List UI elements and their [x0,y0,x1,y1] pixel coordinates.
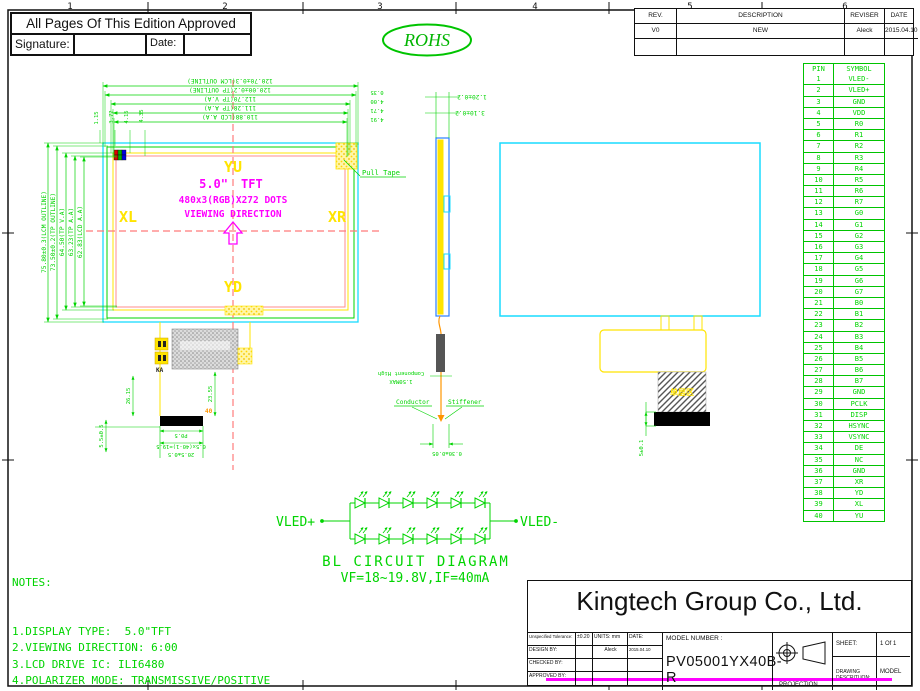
pad-label-ka: KA [156,367,164,374]
front-top-dimension-labels: 120.70±0.3(LCM OUTLINE) 120.00±0.2(TP OU… [187,77,383,122]
sheet-value: 1 Of 1 [877,633,910,657]
model-number-label: MODEL NUMBER : [666,635,772,642]
svg-text:0.30±0.05: 0.30±0.05 [432,450,462,456]
led-symbol [427,527,440,544]
svg-text:3.72: 3.72 [109,110,115,123]
pin40-marker: 40 [205,408,213,415]
pin-row: 3GND [804,96,884,107]
stiffener-label: Stiffener [448,399,482,406]
note-line: 4.POLARIZER MODE: TRANSMISSIVE/POSITIVE [12,673,352,689]
date-label: DATE: [628,633,663,646]
model-number-value: PV05001YX40B-R [666,654,772,686]
bl-subtitle: VF=18~19.8V,IF=40mA [341,571,490,586]
side-stiffener-bar [436,334,445,372]
approved-by-label: APPROVED BY: [528,672,576,685]
pin-row: 25B4 [804,342,884,353]
drawing-description-label: DRAWING DESCRITUON: [833,657,877,690]
svg-text:120.70±0.3(LCM OUTLINE): 120.70±0.3(LCM OUTLINE) [187,77,273,84]
vled-minus-label: VLED- [520,515,559,530]
note-line: 2.VIEWING DIRECTION: 6:00 [12,640,352,656]
svg-text:5±0.1: 5±0.1 [639,440,645,457]
revision-table: REV. DESCRIPTION REVISER DATE V0 NEW Ale… [634,8,914,56]
svg-text:1.15: 1.15 [94,111,100,124]
rohs-stamp: ROHS [383,25,471,56]
pin-row: 20G7 [804,286,884,297]
zone-number: 2 [222,2,227,12]
sheet-label: SHEET: [833,633,877,657]
side-tp-layer [438,140,444,315]
svg-text:1.20±0.2: 1.20±0.2 [457,93,487,100]
fpc-front: KA 40 23.55 26.15 5.5±0.5 P0.5 0.5x(40-1… [95,322,252,458]
pin-row: 15G2 [804,230,884,241]
third-angle-projection-icon [773,633,831,673]
tolerance-value: ±0.20 [576,633,593,646]
led-symbol [403,527,416,544]
notes-block: NOTES: 1.DISPLAY TYPE: 5.0"TFT2.VIEWING … [12,542,352,691]
fpc-tip-arrow [438,415,445,422]
pin-row: 36GND [804,465,884,476]
projection-label: PROJECTION [779,682,818,688]
svg-text:4.71: 4.71 [370,107,383,113]
pin-row: 14G1 [804,219,884,230]
svg-text:63.23(TP A.A): 63.23(TP A.A) [68,208,75,256]
note-line: 1.DISPLAY TYPE: 5.0"TFT [12,624,352,640]
revision-row-empty [635,39,913,55]
units-label: UNITS: mm [593,633,628,646]
tolerance-label: Unspecified Tolerance: [528,633,576,646]
svg-text:4.00: 4.00 [370,98,383,104]
pin-row: 10R5 [804,174,884,185]
design-date: 2015.04.10 [628,646,663,659]
pin-row: 40YU [804,510,884,521]
pin-row: 12R7 [804,196,884,207]
design-by-label: DESIGN BY: [528,646,576,659]
title-block: Kingtech Group Co., Ltd. Unspecified Tol… [527,580,912,686]
description-col-header: DESCRIPTION [677,9,845,24]
back-view: 单层区 5±0.1 [500,143,760,456]
single-layer-label: 单层区 [670,387,694,397]
pin-row: 29GND [804,386,884,397]
pin-row: 17G4 [804,252,884,263]
checked-by-label: CHECKED BY: [528,659,576,672]
led-array [355,491,488,544]
fpc-exit-tab [225,306,263,315]
notes-title: NOTES: [12,575,352,591]
pin-row: 7R2 [804,140,884,151]
led-symbol [451,527,464,544]
pull-tape-label: Pull Tape [362,169,400,177]
pin-row: 21B0 [804,297,884,308]
pin-row: 23B2 [804,319,884,330]
svg-text:64.50(TP V.A): 64.50(TP V.A) [59,208,66,256]
led-symbol [475,491,488,508]
label-yu: YU [224,158,242,176]
tape-pad [238,348,252,364]
conductor-label: Conductor [396,399,430,406]
projection-cell: PROJECTION [773,633,833,690]
zone-number: 3 [377,2,382,12]
pin-row: 8R3 [804,152,884,163]
viewing-direction: VIEWING DIRECTION [184,209,282,220]
signature-field[interactable] [75,35,147,54]
approval-title: All Pages Of This Edition Approved [12,14,250,35]
pin-table: PIN SYMBOL 1VLED-2VLED+3GND4VDD5R06R17R2… [803,63,885,522]
label-xr: XR [328,208,347,226]
pin-row: 32HSYNC [804,420,884,431]
rgb-pixel-swatch [114,150,126,160]
svg-text:4.35: 4.35 [139,109,145,122]
pin-row: 26B5 [804,353,884,364]
signature-label: Signature: [12,35,75,54]
pin-row: 19G6 [804,275,884,286]
pin-row: 6R1 [804,129,884,140]
pull-tape-area [336,143,357,169]
pin-row: 30PCLK [804,398,884,409]
led-symbol [427,491,440,508]
model-label: MODEL [877,657,910,690]
revision-header-row: REV. DESCRIPTION REVISER DATE [635,9,913,24]
svg-text:110.88(LCD A.A): 110.88(LCD A.A) [202,113,258,120]
svg-text:73.50±0.2(TP OUTLINE): 73.50±0.2(TP OUTLINE) [50,193,57,271]
svg-text:0.35: 0.35 [370,89,383,95]
pin-row: 39XL [804,498,884,509]
pin-row: 31DISP [804,409,884,420]
back-fpc-outline [600,330,706,372]
zone-number: 4 [532,2,537,12]
pin-table-header: PIN SYMBOL [804,64,884,74]
svg-text:4.15: 4.15 [124,110,130,123]
pin-row: 13G0 [804,207,884,218]
pin-row: 9R4 [804,163,884,174]
svg-text:112.70(TP V.A): 112.70(TP V.A) [204,95,256,102]
pin-row: 18G5 [804,263,884,274]
rohs-label: ROHS [403,30,450,50]
pin-row: 2VLED+ [804,84,884,95]
approval-date-label: Date: [147,35,185,54]
svg-text:23.55: 23.55 [208,386,214,403]
pin-row: 5R0 [804,118,884,129]
pin-row: 1VLED- [804,74,884,84]
sign-off-table: Unspecified Tolerance: ±0.20 UNITS: mm D… [528,633,663,690]
pin-row: 38YD [804,487,884,498]
rev-col-header: REV. [635,9,677,24]
pin-row: 33VSYNC [804,431,884,442]
led-symbol [355,491,368,508]
svg-text:111.28(TP A.A): 111.28(TP A.A) [204,104,256,111]
pin-row: 27B6 [804,364,884,375]
pin-row: 16G3 [804,241,884,252]
svg-text:5.5±0.5: 5.5±0.5 [99,424,105,447]
svg-text:120.00±0.2(TP OUTLINE): 120.00±0.2(TP OUTLINE) [189,86,271,93]
revision-row: V0 NEW Aleck 2015.04.10 [635,24,913,39]
svg-text:P0.5: P0.5 [174,432,187,438]
svg-text:4.91: 4.91 [370,116,383,122]
svg-text:75.80±0.3(LCM OUTLINE): 75.80±0.3(LCM OUTLINE) [41,191,48,273]
pin-row: 34DE [804,442,884,453]
approval-box: All Pages Of This Edition Approved Signa… [10,12,252,56]
led-symbol [379,527,392,544]
reviser-col-header: REVISER [845,9,885,24]
led-symbol [451,491,464,508]
label-xl: XL [119,208,137,226]
svg-text:1.50MAX: 1.50MAX [389,378,413,384]
pin-table-body: 1VLED-2VLED+3GND4VDD5R06R17R28R39R410R51… [804,74,884,521]
company-name: Kingtech Group Co., Ltd. [528,581,911,633]
model-number-cell: MODEL NUMBER : PV05001YX40B-R [663,633,773,690]
led-symbol [379,491,392,508]
led-symbol [403,491,416,508]
svg-text:62.83(LCD A.A): 62.83(LCD A.A) [77,206,84,258]
date-col-header: DATE [885,9,913,24]
led-symbol [355,527,368,544]
notes-list: 1.DISPLAY TYPE: 5.0"TFT2.VIEWING DIRECTI… [12,624,352,691]
designer-name: Aleck [593,646,628,659]
pin-row: 24B3 [804,331,884,342]
heat-seal-pad [155,338,168,350]
panel-resolution: 480x3(RGB)X272 DOTS [179,195,288,206]
side-view: 1.20±0.2 3.10±0.2 Component High 1.50MAX… [378,92,487,456]
pin-row: 37XR [804,476,884,487]
vled-plus-label: VLED+ [276,515,315,530]
panel-size: 5.0" [199,177,228,191]
front-left-dimension-labels: 75.80±0.3(LCM OUTLINE) 73.50±0.2(TP OUTL… [41,109,145,273]
pin-row: 35NC [804,454,884,465]
svg-text:26.15: 26.15 [126,388,132,405]
svg-text:0.5x(40-1)=19.5: 0.5x(40-1)=19.5 [156,443,206,449]
svg-text:Component High: Component High [378,370,424,376]
label-yd: YD [224,278,242,296]
pin-row: 22B1 [804,308,884,319]
plate-print [180,341,230,350]
heat-seal-pad [155,352,168,364]
sheet-info-cell: SHEET: 1 Of 1 DRAWING DESCRITUON: MODEL [833,633,910,690]
svg-text:3.10±0.2: 3.10±0.2 [455,109,485,116]
connector-contact-bar [160,416,203,426]
back-connector-bar [654,412,710,426]
note-line: 3.LCD DRIVE IC: ILI6480 [12,657,352,673]
drawing-sheet: 123456 ROHS Pull Tape YU XL XR YD 5.0" [0,0,920,691]
svg-text:20.5±0.5: 20.5±0.5 [168,451,195,457]
pin-row: 4VDD [804,107,884,118]
zone-number: 1 [67,2,72,12]
pin-row: 28B7 [804,375,884,386]
led-symbol [475,527,488,544]
approval-date-field[interactable] [185,35,250,54]
pin-row: 11R6 [804,185,884,196]
panel-type: TFT [241,177,263,191]
